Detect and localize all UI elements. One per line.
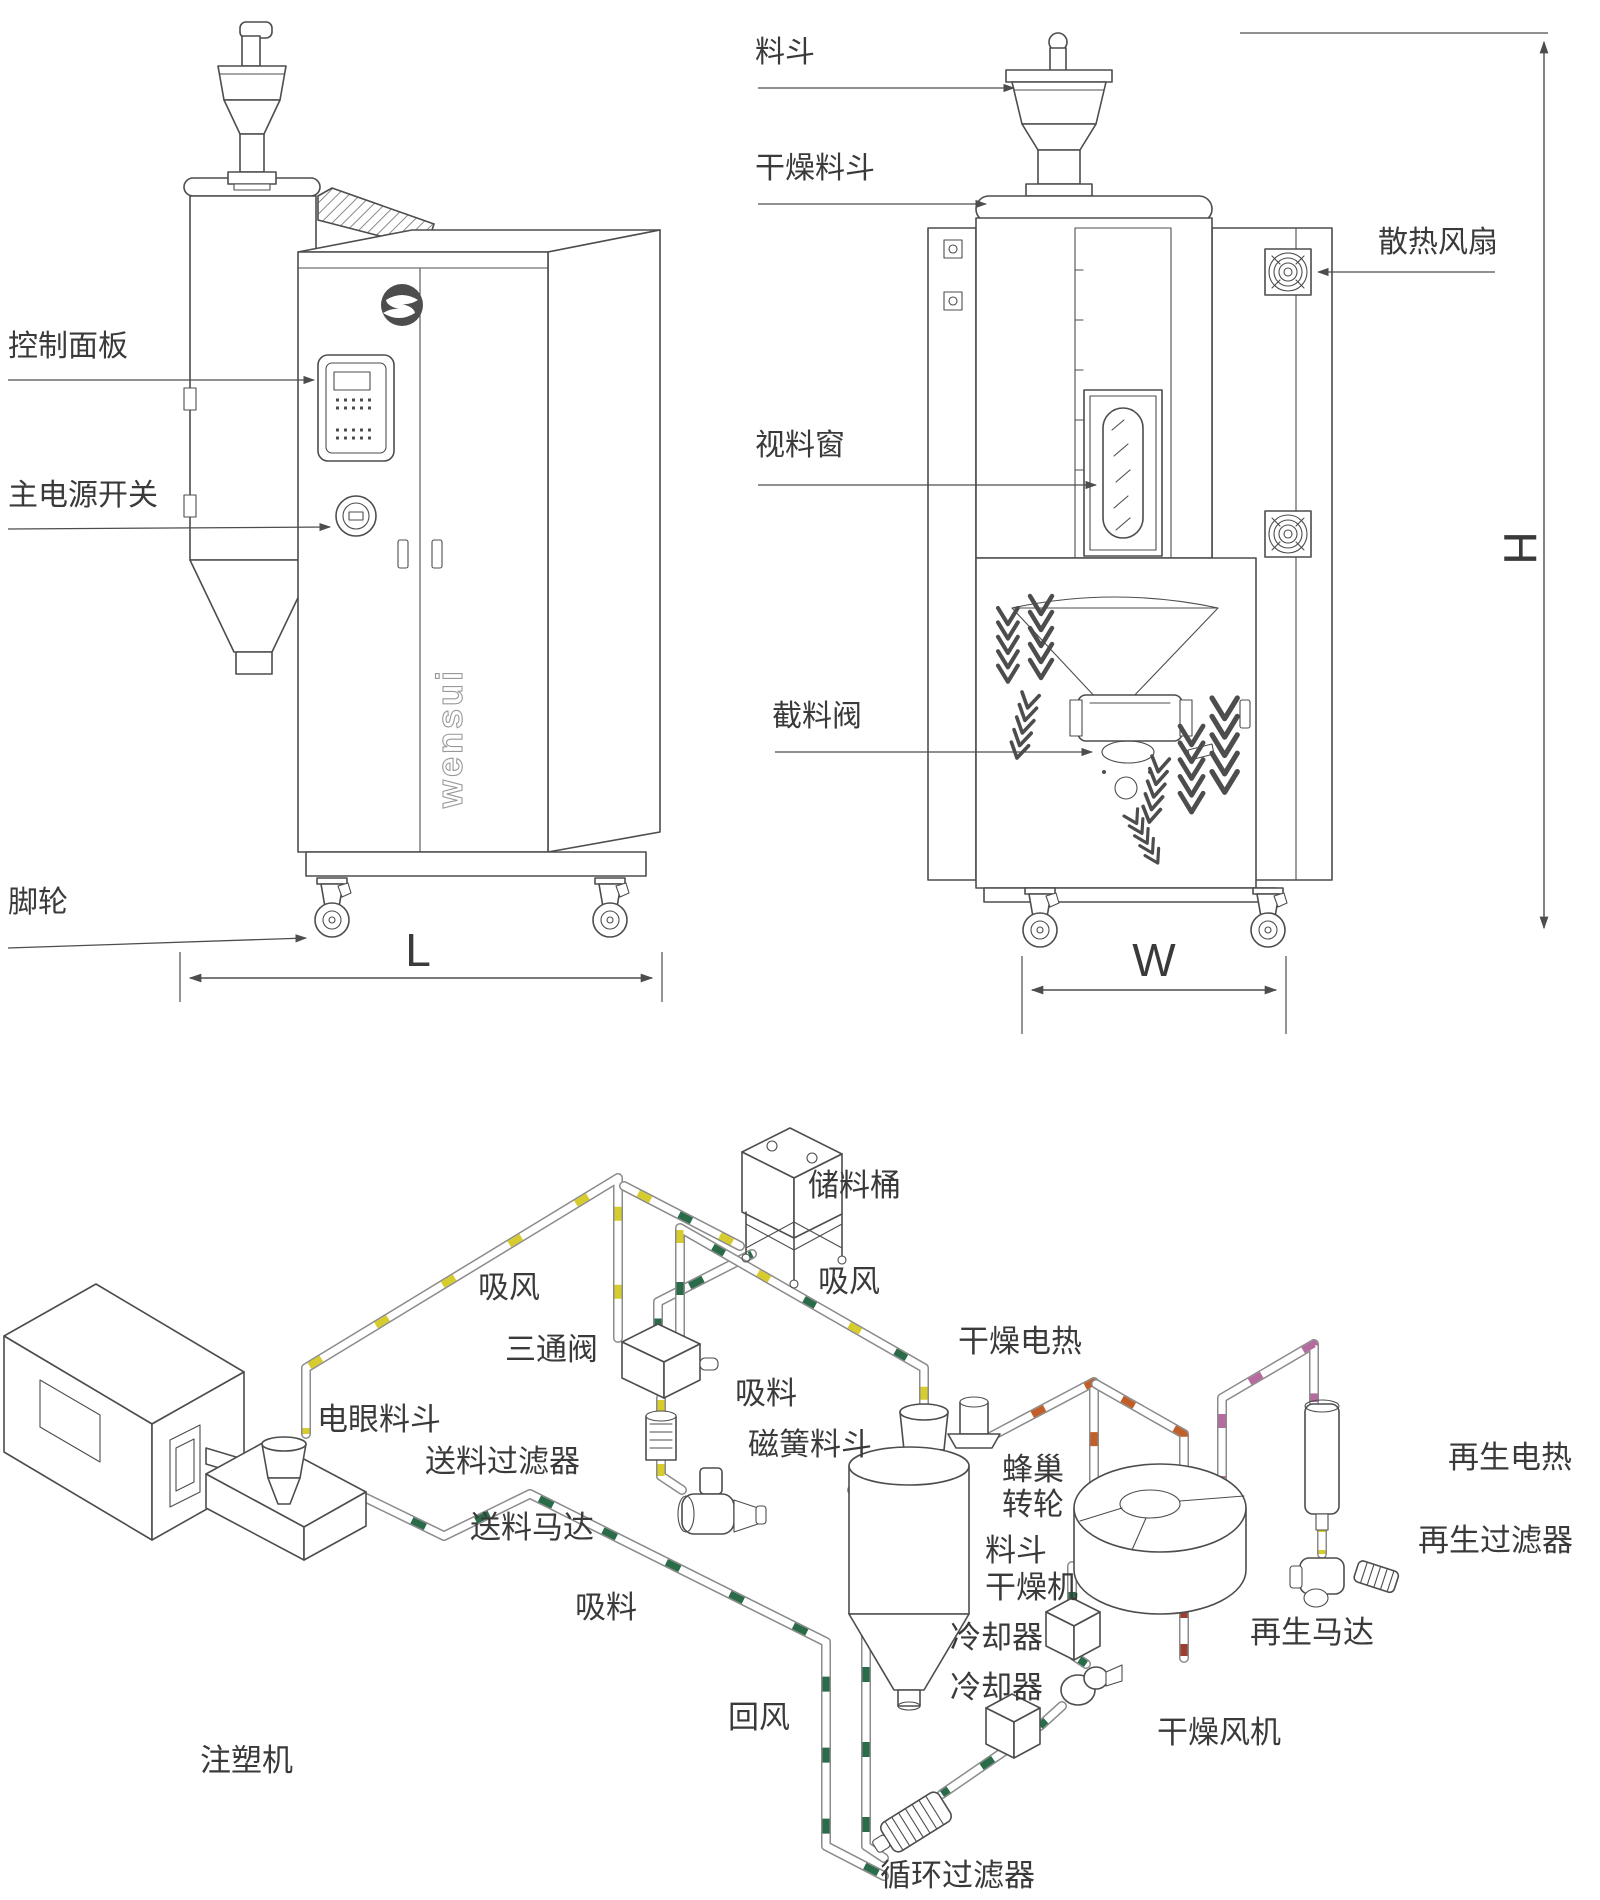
return-air-label: 回风	[728, 1700, 790, 1735]
drum-body	[190, 196, 316, 560]
hopper-label: 料斗	[755, 36, 815, 69]
three-way-valve-label: 三通阀	[505, 1332, 598, 1367]
honeycomb-wheel-label-1: 蜂巢	[1002, 1452, 1064, 1487]
regen-air-pipe	[1222, 1344, 1314, 1478]
viewing-window	[1084, 390, 1162, 556]
hopper-dryer-label-1: 料斗	[985, 1533, 1047, 1568]
circulation-filter-label: 循环过滤器	[880, 1858, 1035, 1893]
logo-text: wensui	[429, 668, 470, 809]
suction-material-pipe	[680, 1228, 924, 1410]
regen-filter-label: 再生过滤器	[1418, 1523, 1573, 1558]
cabinet-front	[298, 252, 548, 852]
regen-heater	[1305, 1400, 1339, 1530]
caster-leader	[8, 938, 306, 948]
length-dim-label: L	[405, 924, 431, 976]
drum-cone	[190, 560, 316, 652]
storage-barrel-label: 储料桶	[808, 1168, 901, 1203]
suction-air-pipe	[306, 1178, 618, 1434]
rear-view-machine: W H 料斗 干燥料斗 散热风扇 视料窗 截料阀	[755, 33, 1548, 1034]
honeycomb-wheel-label-2: 转轮	[1002, 1487, 1064, 1522]
suction-material-upper-label: 吸料	[735, 1376, 797, 1411]
drying-hopper-label: 干燥料斗	[755, 152, 875, 185]
circulation-filter	[866, 1790, 954, 1862]
cooler-1-label: 冷却器	[950, 1620, 1043, 1655]
cabinet-side	[548, 230, 660, 852]
dehumidifying-dryer-diagram-page: wensui L 控制面板 主电源开关 脚轮	[0, 0, 1600, 1900]
cooler-2-label: 冷却器	[950, 1670, 1043, 1705]
cutoff-valve-label: 截料阀	[772, 700, 862, 733]
suction-material-lower-pipe	[366, 1494, 884, 1876]
height-dim-label: H	[1494, 531, 1546, 564]
control-panel	[318, 355, 394, 461]
drying-heater-label: 干燥电热	[958, 1324, 1082, 1359]
regen-heater-label: 再生电热	[1448, 1440, 1572, 1475]
diagram-canvas: wensui L 控制面板 主电源开关 脚轮	[0, 0, 1600, 1900]
feed-motor	[678, 1468, 766, 1534]
drying-heater	[948, 1397, 1000, 1448]
drying-blower-label: 干燥风机	[1157, 1715, 1281, 1750]
main-power-switch-label: 主电源开关	[8, 479, 158, 512]
three-way-valve	[622, 1324, 718, 1398]
cooler-box-1	[1046, 1598, 1100, 1660]
suction-air-right-label: 吸风	[818, 1264, 880, 1299]
width-dim-label: W	[1132, 934, 1176, 986]
control-panel-label: 控制面板	[8, 330, 128, 363]
feed-filter-label: 送料过滤器	[425, 1444, 580, 1479]
front-hopper	[218, 22, 286, 190]
feed-filter	[646, 1411, 676, 1460]
front-view-machine: wensui L 控制面板 主电源开关 脚轮	[8, 22, 662, 1002]
regen-motor	[1290, 1558, 1400, 1607]
machine-base	[306, 852, 646, 876]
honeycomb-wheel	[1074, 1464, 1246, 1614]
viewing-window-label: 视料窗	[755, 429, 845, 462]
caster-label: 脚轮	[8, 886, 68, 919]
injection-molding-machine	[4, 1284, 366, 1560]
hopper-dryer-label-2: 干燥机	[985, 1570, 1078, 1605]
cooling-fan-top	[1265, 249, 1311, 295]
suction-air-left-label: 吸风	[478, 1270, 540, 1305]
injection-molding-machine-label: 注塑机	[200, 1743, 293, 1778]
rear-top-hopper	[1006, 33, 1112, 196]
regen-motor-label: 再生马达	[1250, 1615, 1374, 1650]
cooling-fan-bottom	[1265, 511, 1311, 557]
drying-blower	[1061, 1665, 1122, 1705]
flow-diagram: 储料桶 吸风 吸风 三通阀 吸料 干燥电热 电眼料斗 送料过滤器 送料马达 磁簧…	[4, 1128, 1573, 1893]
cooling-fan-label: 散热风扇	[1378, 226, 1498, 259]
back-panel-left	[928, 228, 976, 880]
feed-motor-label: 送料马达	[470, 1510, 594, 1545]
photo-eye-hopper-label: 电眼料斗	[317, 1402, 441, 1437]
brand-emblem-icon	[381, 284, 423, 326]
suction-material-lower-label: 吸料	[575, 1590, 637, 1625]
magnetic-hopper-label: 磁簧料斗	[748, 1427, 872, 1462]
